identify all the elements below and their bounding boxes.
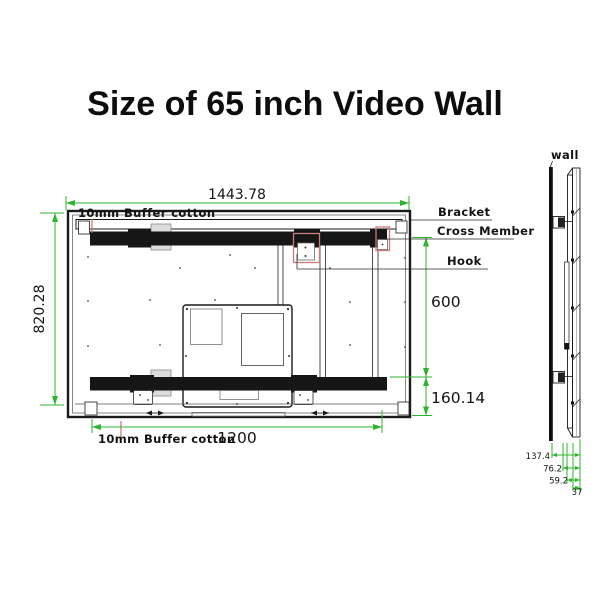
side-dim-mount-depth: 76.2 [543,465,562,475]
mount-rail-hook [565,343,570,350]
vertical-rails [278,245,378,377]
bracket-end-cap-left [79,221,90,234]
buffer-cotton-label-top: 10mm Buffer cotton [78,206,215,220]
buffer-cotton-label-bottom: 10mm Buffer cotton [98,432,235,446]
dim-bottom-offset-label: 160.14 [431,389,485,407]
dim-total-height-label: 820.28 [32,285,48,334]
wall-brackets [553,217,573,384]
mount-rail-section [565,262,570,349]
side-dim-total-depth: 137.4 [526,452,550,462]
side-dim-bracket-depth: 59.2 [549,477,568,487]
cross-member-bottom [90,375,387,393]
page-title: Size of 65 inch Video Wall [87,85,503,123]
cross-member-top [90,230,387,248]
front-view-panel [68,211,410,417]
hook-plate-highlighted [298,243,315,260]
bottom-cap-right [398,402,409,415]
hook-label: Hook [447,254,482,268]
cross-member-label: Cross Member [437,224,534,238]
bracket-label: Bracket [438,205,491,219]
side-view [549,167,580,441]
center-box-bottom-slot [220,391,259,400]
bracket-end-cap-right [396,221,407,233]
wall-label: wall [551,148,579,162]
bracket-rail [76,220,402,230]
bottom-cap-left [85,402,97,415]
diagram-canvas: Size of 65 inch Video Wall [0,0,600,600]
video-wall-size-diagram: Size of 65 inch Video Wall [0,0,600,600]
side-dim-panel-depth: 37 [572,488,583,498]
dim-total-width-label: 1443.78 [208,187,266,203]
dim-cross-member-spacing-label: 600 [431,293,461,311]
wall-section [549,167,553,441]
